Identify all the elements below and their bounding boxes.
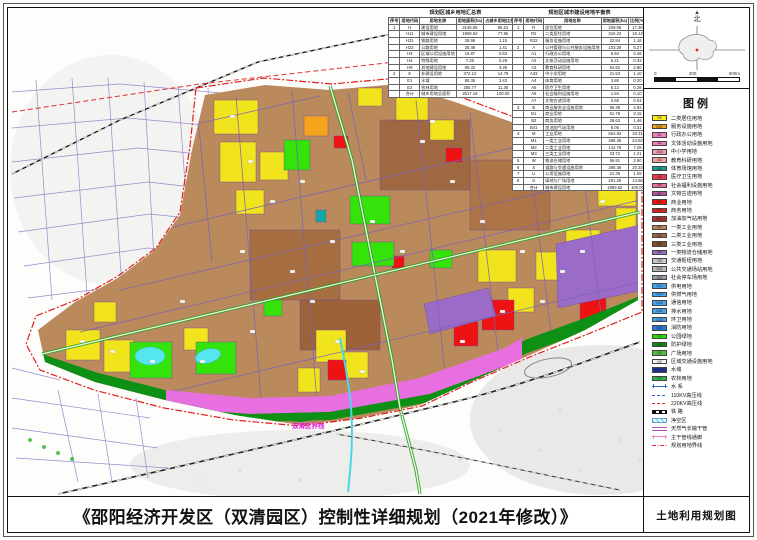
- legend-item: R22服务设施用地: [644, 122, 750, 130]
- table-row: A6社会福利设施用地1.940.10: [513, 91, 647, 98]
- legend-swatch: B1: [652, 199, 667, 205]
- legend-item-label: 主干管线通廊: [671, 434, 702, 441]
- legend-item: A7文物古迹用地: [644, 190, 750, 198]
- table-title: 规划区城乡用地汇总表: [389, 10, 523, 18]
- table-row: A1行政办公用地8.940.46: [513, 51, 647, 58]
- legend-item: M3三类工业用地: [644, 240, 750, 248]
- legend-swatch: A6: [652, 183, 667, 189]
- table-row: H4特殊用地7.260.29: [389, 58, 523, 65]
- legend-swatch: A33: [652, 149, 667, 155]
- legend-swatch: [652, 418, 667, 424]
- table-row: 6S道路与交通设施用地398.4620.33: [513, 164, 647, 171]
- legend-item-label: 公共交通场站用地: [671, 266, 713, 273]
- table-row: B41加油加气站用地6.060.31: [513, 124, 647, 131]
- legend-item-label: 供电用地: [671, 283, 692, 290]
- table-row: 3B商业服务业设施用地96.484.92: [513, 104, 647, 111]
- legend-item: U22环卫用地: [644, 315, 750, 323]
- table-row: 2E非建设用地372.1214.79: [389, 71, 523, 78]
- legend-item-label: 服务设施用地: [671, 123, 702, 130]
- legend-item: 水 系: [644, 383, 750, 391]
- legend-item: A1行政办公用地: [644, 131, 750, 139]
- compass-box: ▲ 北 0 300 600m: [644, 8, 750, 89]
- legend-item: A6社会福利设施用地: [644, 181, 750, 189]
- north-label: 北: [694, 16, 701, 23]
- district-boundary-label: 双清区界线: [292, 421, 325, 430]
- table-row: M1一类工业用地486.3524.82: [513, 138, 647, 145]
- legend-swatch: B2: [652, 208, 667, 214]
- legend-item: U12供电用地: [644, 282, 750, 290]
- table-header-row: 序号用地代码用地名称用地面积(ha)占城乡用地比例(%): [389, 18, 523, 25]
- legend-item-label: 行政办公用地: [671, 131, 702, 138]
- legend-item: E1水域: [644, 366, 750, 374]
- legend-item-label: 通信用地: [671, 299, 692, 306]
- table-row: 合计城乡用地总面积2517.18100.00: [389, 91, 523, 98]
- legend-swatch: A2: [652, 141, 667, 147]
- legend-swatch: A4: [652, 166, 667, 172]
- legend-item: 天然气长输干管: [644, 424, 750, 432]
- green-specks: [28, 438, 74, 461]
- table-row: A33中小学用地21.531.10: [513, 71, 647, 78]
- legend: 图例 R2二类居住用地R22服务设施用地A1行政办公用地A2文体活动设施用地A3…: [644, 89, 750, 450]
- legend-swatch: R2: [652, 115, 667, 121]
- legend-item-label: 三类工业用地: [671, 241, 702, 248]
- legend-item: A2文体活动设施用地: [644, 139, 750, 147]
- legend-swatch: U31: [652, 325, 667, 331]
- legend-swatch: E1: [652, 367, 667, 373]
- legend-item: U15通信用地: [644, 299, 750, 307]
- legend-swatch: A7: [652, 191, 667, 197]
- table-row: H11城市建设用地1959.6277.85: [389, 31, 523, 38]
- table-row: 1H建设用地2145.0685.21: [389, 24, 523, 31]
- legend-item: M2二类工业用地: [644, 231, 750, 239]
- legend-item: 净空区: [644, 416, 750, 424]
- legend-item-label: 商业用地: [671, 199, 692, 206]
- table-row: 合计城市建设用地1959.62100.00: [513, 184, 647, 191]
- legend-item-label: 二类工业用地: [671, 232, 702, 239]
- legend-item: W1一类物流仓储用地: [644, 248, 750, 256]
- legend-item: U31消防用地: [644, 324, 750, 332]
- table-row: B1商业用地61.793.15: [513, 111, 647, 118]
- legend-item: A5医疗卫生用地: [644, 173, 750, 181]
- table-row: A4体育用地3.860.20: [513, 78, 647, 85]
- legend-title: 图例: [644, 95, 750, 111]
- legend-swatch: [652, 401, 667, 407]
- legend-item: 铁 路: [644, 408, 750, 416]
- legend-item-label: 规划用地界线: [671, 442, 702, 449]
- legend-item: S3交通枢纽用地: [644, 257, 750, 265]
- legend-swatch: [652, 434, 667, 440]
- legend-item: 主干管线通廊: [644, 433, 750, 441]
- north-arrow-icon: ▲ 北: [694, 10, 701, 23]
- scale-label-300: 300: [689, 71, 697, 76]
- table-header-row: 序号用地代码用地名称用地面积(ha)比例(%): [513, 18, 647, 25]
- table-row: H21铁路用地28.961.15: [389, 38, 523, 45]
- legend-item: U13供燃气用地: [644, 290, 750, 298]
- table-row: E2农林用地285.7711.36: [389, 84, 523, 91]
- legend-item: M1一类工业用地: [644, 223, 750, 231]
- table-row: M3三类工业用地23.721.21: [513, 151, 647, 158]
- legend-item: A33中小学用地: [644, 148, 750, 156]
- legend-swatch: E2: [652, 376, 667, 382]
- legend-swatch: B41: [652, 216, 667, 222]
- legend-item: E2农林用地: [644, 374, 750, 382]
- legend-swatch: S42: [652, 275, 667, 281]
- table-row: R22服务设施用地22.841.16: [513, 38, 647, 45]
- legend-item: S42社会停车场用地: [644, 273, 750, 281]
- sheet-name: 土地利用规划图: [656, 508, 737, 523]
- table-title: 规划区城市建设用地平衡表: [513, 10, 647, 18]
- sheet-name-box: 土地利用规划图: [643, 497, 749, 533]
- sheet-side-column: ▲ 北 0 300 600m 图例 R2二类居住用地R22服务设施用地A1行政办…: [643, 8, 750, 496]
- legend-item: 规划用地界线: [644, 441, 750, 449]
- legend-item-label: 社会福利设施用地: [671, 182, 713, 189]
- table-row: A2文体活动设施用地6.210.32: [513, 58, 647, 65]
- table-row: H22公路用地35.481.41: [389, 44, 523, 51]
- legend-swatch: U15: [652, 300, 667, 306]
- legend-item-label: 220KV高压线: [671, 400, 702, 407]
- location-inset-map: [645, 24, 749, 70]
- legend-swatch: H2: [652, 359, 667, 365]
- legend-item-label: 一类物流仓储用地: [671, 249, 713, 256]
- legend-swatch: U12: [652, 283, 667, 289]
- legend-items: R2二类居住用地R22服务设施用地A1行政办公用地A2文体活动设施用地A33中小…: [644, 114, 750, 450]
- legend-item-label: 中小学用地: [671, 148, 697, 155]
- legend-swatch: [652, 384, 667, 390]
- legend-item-label: 体育场馆用地: [671, 165, 702, 172]
- scale-label-600m: 600m: [729, 71, 740, 76]
- table-title-row: 规划区城市建设用地平衡表: [513, 10, 647, 18]
- table-row: 8G绿地与广场用地291.2514.86: [513, 178, 647, 185]
- legend-swatch: U13: [652, 292, 667, 298]
- table-row: R2二类居住用地316.2216.14: [513, 31, 647, 38]
- legend-item-label: 水 系: [671, 383, 683, 390]
- legend-swatch: M2: [652, 233, 667, 239]
- table-row: 1R居住用地339.0617.30: [513, 24, 647, 31]
- legend-item-label: 110KV高压线: [671, 392, 702, 399]
- legend-item-label: 环卫用地: [671, 316, 692, 323]
- table-row: A3教育科研用地54.822.80: [513, 64, 647, 71]
- legend-item: U21排水用地: [644, 307, 750, 315]
- legend-swatch: U21: [652, 308, 667, 314]
- legend-swatch: R22: [652, 124, 667, 130]
- legend-swatch: M1: [652, 225, 667, 231]
- construction-land-balance-table: 规划区城市建设用地平衡表序号用地代码用地名称用地面积(ha)比例(%)1R居住用…: [512, 10, 647, 191]
- sheet-title: 《邵阳经济开发区（双清园区）控制性详细规划（2021年修改）》: [74, 503, 578, 528]
- legend-item: 110KV高压线: [644, 391, 750, 399]
- legend-item-label: 加油加气站用地: [671, 215, 707, 222]
- legend-item-label: 商务用地: [671, 207, 692, 214]
- table-row: 5W物流仓储用地56.912.90: [513, 158, 647, 165]
- legend-item: B2商务用地: [644, 206, 750, 214]
- legend-item-label: 排水用地: [671, 308, 692, 315]
- legend-swatch: S41: [652, 266, 667, 272]
- legend-swatch: G1: [652, 334, 667, 340]
- legend-item-label: 净空区: [671, 417, 687, 424]
- table-row: 2A公共管理与公共服务设施用地103.285.27: [513, 44, 647, 51]
- table-row: E1水域86.353.43: [389, 78, 523, 85]
- legend-item: B41加油加气站用地: [644, 215, 750, 223]
- legend-item-label: 医疗卫生用地: [671, 173, 702, 180]
- legend-item: R2二类居住用地: [644, 114, 750, 122]
- table-title-row: 规划区城乡用地汇总表: [389, 10, 523, 18]
- scale-bar: 0 300 600m: [654, 71, 740, 82]
- legend-swatch: S3: [652, 258, 667, 264]
- legend-item: A4体育场馆用地: [644, 164, 750, 172]
- legend-swatch: M3: [652, 241, 667, 247]
- legend-item-label: 农林用地: [671, 375, 692, 382]
- legend-swatch: A1: [652, 132, 667, 138]
- legend-item-label: 区域交通设施用地: [671, 358, 713, 365]
- legend-swatch: [652, 426, 667, 432]
- legend-item-label: 文物古迹用地: [671, 190, 702, 197]
- legend-item: G2防护绿地: [644, 341, 750, 349]
- table-row: H9其他建设用地85.323.39: [389, 64, 523, 71]
- land-use-summary-table: 规划区城乡用地汇总表序号用地代码用地名称用地面积(ha)占城乡用地比例(%)1H…: [388, 10, 523, 98]
- table-row: B2商务用地28.631.46: [513, 118, 647, 125]
- legend-item-label: 交通枢纽用地: [671, 257, 702, 264]
- table-row: 7U公用设施用地21.351.09: [513, 171, 647, 178]
- legend-swatch: A5: [652, 174, 667, 180]
- legend-item: 220KV高压线: [644, 399, 750, 407]
- legend-item-label: 二类居住用地: [671, 115, 702, 122]
- table-row: H3区域公用设施用地15.870.63: [389, 51, 523, 58]
- legend-item: B1商业用地: [644, 198, 750, 206]
- legend-item: G1公园绿地: [644, 332, 750, 340]
- legend-item-label: 教育科研用地: [671, 157, 702, 164]
- legend-item-label: 文体活动设施用地: [671, 140, 713, 147]
- legend-item: A3教育科研用地: [644, 156, 750, 164]
- title-band: 《邵阳经济开发区（双清园区）控制性详细规划（2021年修改）》 土地利用规划图: [8, 496, 749, 533]
- legend-item-label: 水域: [671, 366, 681, 373]
- legend-item: S41公共交通场站用地: [644, 265, 750, 273]
- legend-item-label: 一类工业用地: [671, 224, 702, 231]
- scale-strip: [654, 77, 740, 82]
- legend-swatch: G3: [652, 350, 667, 356]
- legend-item: G3广场用地: [644, 349, 750, 357]
- legend-item-label: 铁 路: [671, 408, 683, 415]
- legend-swatch: [652, 410, 667, 414]
- table-row: A7文物古迹用地0.860.04: [513, 98, 647, 105]
- legend-swatch: [652, 443, 667, 449]
- table-row: A5医疗卫生用地5.120.26: [513, 84, 647, 91]
- legend-item-label: 广场用地: [671, 350, 692, 357]
- legend-item: H2区域交通设施用地: [644, 357, 750, 365]
- legend-swatch: [652, 392, 667, 398]
- legend-item-label: 公园绿地: [671, 333, 692, 340]
- scale-label-0: 0: [654, 71, 657, 76]
- table-row: M2二类工业用地142.767.28: [513, 144, 647, 151]
- legend-item-label: 防护绿地: [671, 341, 692, 348]
- legend-swatch: G2: [652, 342, 667, 348]
- legend-swatch: U22: [652, 317, 667, 323]
- legend-item-label: 社会停车场用地: [671, 274, 707, 281]
- legend-item-label: 消防用地: [671, 324, 692, 331]
- title-area: 《邵阳经济开发区（双清园区）控制性详细规划（2021年修改）》: [8, 497, 643, 533]
- legend-item-label: 供燃气用地: [671, 291, 697, 298]
- legend-item-label: 天然气长输干管: [671, 425, 707, 432]
- table-row: 4M工业用地652.8333.31: [513, 131, 647, 138]
- legend-swatch: W1: [652, 250, 667, 256]
- legend-swatch: A3: [652, 157, 667, 163]
